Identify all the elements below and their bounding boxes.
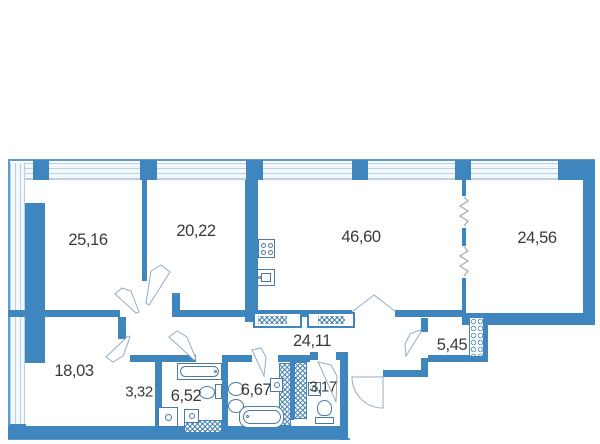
wall-segment [395,310,462,317]
room-area-label: 24,11 [293,333,331,350]
toilet-tank-icon [215,384,222,399]
wall-segment [222,355,252,362]
door-leaf-icon [252,348,266,376]
door-leaf-icon [106,336,130,362]
partition-gap [460,246,468,278]
wardrobe-hatch [253,312,302,328]
wall-segment [278,355,310,362]
bathtub-icon [239,406,284,428]
room-area-label: 20,22 [176,223,215,240]
window-glazing [10,163,593,180]
room-area-label: 5,45 [437,337,468,354]
floor-plan: 25,16 20,22 46,60 24,56 18,03 3,32 6,52 … [0,0,600,444]
wall-segment [8,426,348,439]
wall-segment [421,318,428,332]
door-leaf-icon [146,265,170,305]
window-glazing [10,363,25,424]
insulated-shaft-hatch [469,317,484,357]
wall-segment [8,310,120,317]
room-area-label: 46,60 [341,229,380,246]
room-area-label: 24,56 [517,230,556,247]
wall-segment [140,160,157,180]
wardrobe-hatch-fill [258,316,287,324]
wall-segment [246,160,263,180]
wall-segment [421,358,428,377]
wall-segment [352,160,368,180]
entrance-door-arc-icon [352,377,383,408]
door-leaf-icon [405,330,421,356]
small-sink-icon [270,378,283,392]
wall-segment [245,180,258,322]
washing-machine-icon [158,407,178,427]
room-area-label: 6,52 [171,388,202,405]
wall-segment [33,160,49,180]
wall-segment [172,310,245,317]
partition-gap [460,196,468,228]
wall-segment [142,180,147,281]
vent-shaft-hatch [294,362,307,419]
wardrobe-hatch-fill [318,316,345,324]
wall-segment [118,317,126,339]
double-door-icon [352,295,396,312]
outline-top [8,159,595,161]
stove-icon [258,239,275,258]
wall-segment [583,160,595,317]
wall-segment [155,355,196,362]
toilet-icon [317,400,332,416]
toilet-tank-icon [315,417,334,424]
room-area-label: 6,67 [241,382,272,399]
wall-segment [25,203,45,363]
wall-segment [455,160,471,180]
room-area-label: 3,32 [125,385,153,400]
sink-icon [184,409,199,423]
window-glazing [10,163,25,363]
room-area-label: 25,16 [68,232,107,249]
kitchen-sink-icon [257,269,275,286]
wardrobe-hatch [307,312,355,328]
wall-segment [310,352,318,360]
room-area-label: 18,03 [54,363,93,380]
bathtub-icon [177,363,222,380]
room-area-label: 3,17 [309,380,337,395]
